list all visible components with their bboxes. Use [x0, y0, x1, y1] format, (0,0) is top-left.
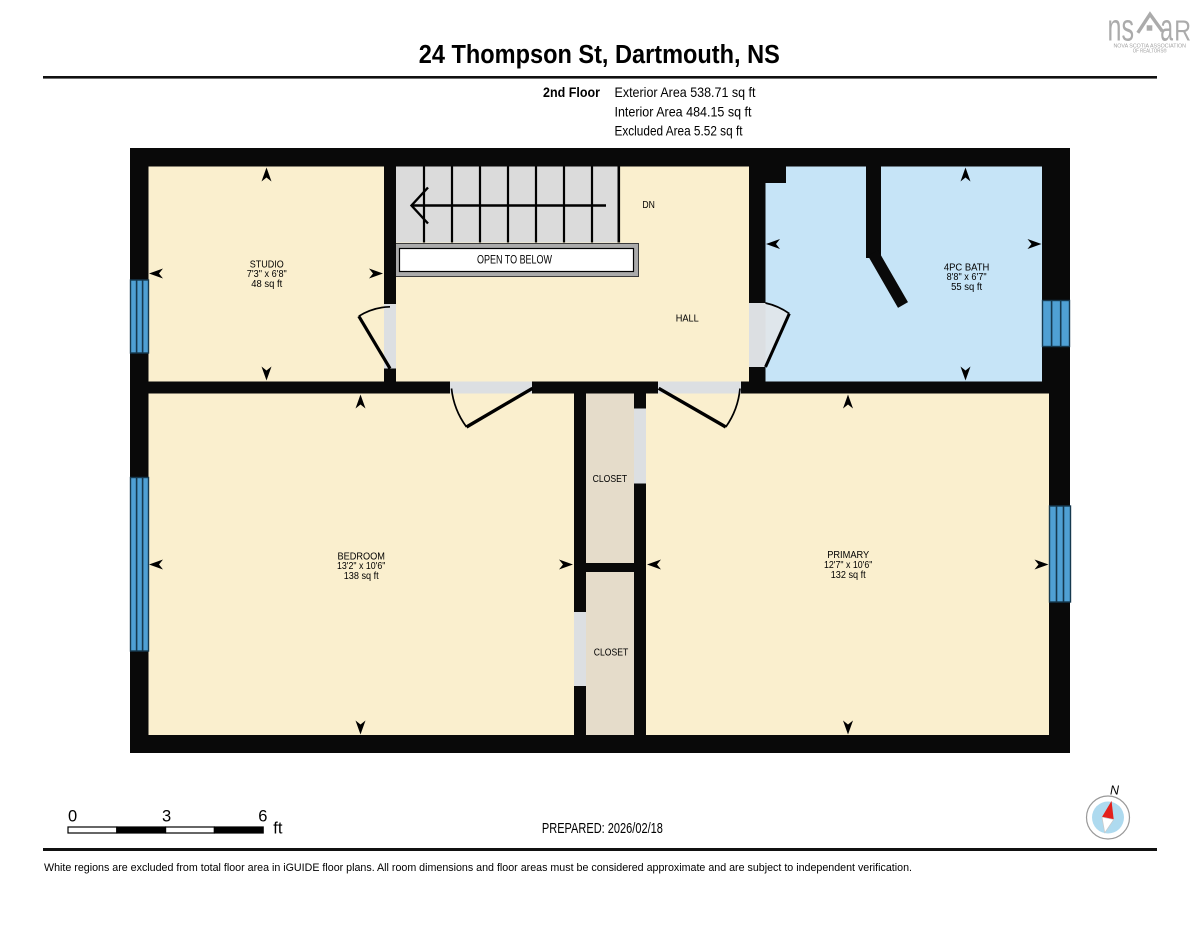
- svg-text:Interior Area 484.15 sq ft: Interior Area 484.15 sq ft: [615, 103, 752, 119]
- svg-text:0: 0: [68, 808, 77, 826]
- svg-text:OPEN TO BELOW: OPEN TO BELOW: [477, 253, 553, 267]
- svg-text:N: N: [1110, 784, 1120, 798]
- svg-text:24 Thompson St, Dartmouth, NS: 24 Thompson St, Dartmouth, NS: [419, 41, 780, 69]
- svg-text:White regions are excluded fro: White regions are excluded from total fl…: [44, 862, 912, 874]
- svg-text:Excluded Area 5.52 sq ft: Excluded Area 5.52 sq ft: [615, 123, 743, 139]
- svg-text:Exterior Area 538.71 sq ft: Exterior Area 538.71 sq ft: [615, 84, 756, 100]
- svg-text:PREPARED: 2026/02/18: PREPARED: 2026/02/18: [542, 820, 663, 837]
- svg-text:HALL: HALL: [676, 313, 699, 325]
- svg-text:55 sq ft: 55 sq ft: [951, 282, 982, 293]
- svg-text:2nd Floor: 2nd Floor: [543, 84, 600, 100]
- svg-text:138 sq ft: 138 sq ft: [344, 571, 379, 582]
- svg-text:3: 3: [162, 808, 171, 826]
- svg-text:CLOSET: CLOSET: [593, 473, 628, 485]
- svg-text:OF REALTORS®: OF REALTORS®: [1133, 48, 1167, 55]
- svg-text:48 sq ft: 48 sq ft: [251, 279, 282, 290]
- svg-text:ft: ft: [273, 820, 283, 838]
- svg-text:CLOSET: CLOSET: [594, 647, 629, 659]
- svg-text:6: 6: [258, 808, 267, 826]
- svg-text:DN: DN: [642, 199, 655, 211]
- svg-text:132 sq ft: 132 sq ft: [831, 570, 866, 581]
